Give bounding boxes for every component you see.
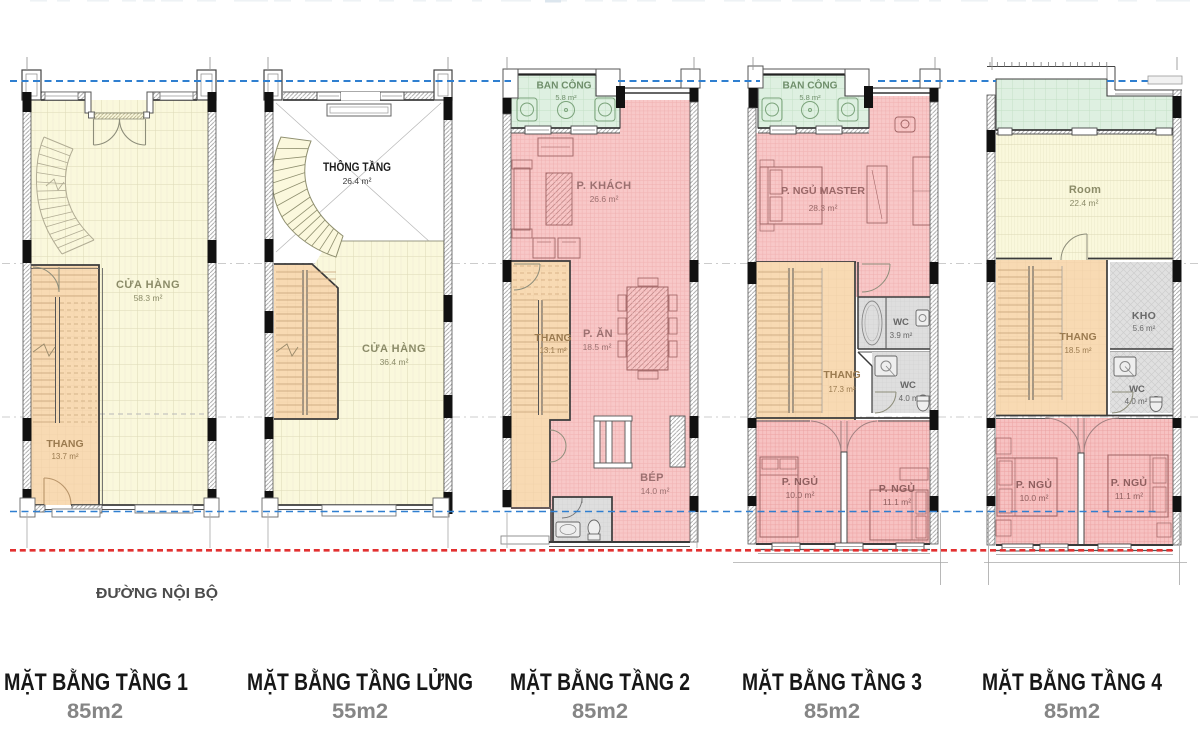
svg-text:WC: WC [900, 380, 916, 391]
svg-text:5.6 m²: 5.6 m² [1133, 324, 1156, 333]
svg-text:WC: WC [893, 317, 909, 328]
svg-text:18.5 m²: 18.5 m² [1064, 346, 1091, 355]
svg-text:CỬA HÀNG: CỬA HÀNG [362, 342, 426, 355]
svg-text:MẶT BẰNG TẦNG LỬNG: MẶT BẰNG TẦNG LỬNG [247, 667, 473, 696]
svg-text:P. NGỦ: P. NGỦ [1111, 476, 1148, 489]
svg-text:85m2: 85m2 [1044, 699, 1100, 723]
svg-text:5.8 m²: 5.8 m² [555, 93, 577, 102]
svg-text:P. NGỦ: P. NGỦ [1016, 478, 1053, 491]
svg-text:58.3 m²: 58.3 m² [134, 293, 163, 303]
svg-text:THANG: THANG [534, 332, 571, 344]
svg-text:P. KHÁCH: P. KHÁCH [577, 179, 632, 192]
svg-text:P. NGỦ: P. NGỦ [782, 475, 819, 488]
svg-text:85m2: 85m2 [804, 699, 860, 723]
svg-text:THANG: THANG [1059, 331, 1096, 343]
svg-text:17.3 m²: 17.3 m² [828, 385, 855, 394]
svg-text:CỬA HÀNG: CỬA HÀNG [116, 278, 180, 291]
svg-text:BÉP: BÉP [640, 471, 664, 484]
svg-text:26.4 m²: 26.4 m² [343, 176, 372, 186]
svg-text:MẶT BẰNG TẦNG 2: MẶT BẰNG TẦNG 2 [510, 668, 690, 696]
svg-text:11.1 m²: 11.1 m² [1115, 491, 1143, 501]
svg-text:WC: WC [1129, 384, 1145, 395]
svg-text:13.1 m²: 13.1 m² [539, 346, 566, 355]
svg-text:3.9 m²: 3.9 m² [890, 331, 913, 340]
svg-text:MẶT BẰNG TẦNG 4: MẶT BẰNG TẦNG 4 [982, 668, 1163, 696]
svg-text:55m2: 55m2 [332, 699, 388, 723]
svg-text:P. ĂN: P. ĂN [583, 327, 613, 340]
svg-text:BAN CÔNG: BAN CÔNG [537, 79, 592, 92]
svg-text:22.4 m²: 22.4 m² [1070, 198, 1099, 208]
svg-text:13.7 m²: 13.7 m² [51, 452, 78, 461]
svg-text:5.8 m²: 5.8 m² [799, 93, 821, 102]
svg-text:P. NGỦ: P. NGỦ [879, 482, 916, 495]
svg-text:KHO: KHO [1132, 310, 1156, 322]
svg-text:P. NGỦ MASTER: P. NGỦ MASTER [781, 184, 865, 197]
svg-text:THANG: THANG [823, 369, 860, 381]
svg-text:18.5 m²: 18.5 m² [583, 342, 612, 352]
svg-text:10.0 m²: 10.0 m² [786, 490, 815, 500]
svg-text:MẶT BẰNG TẦNG 1: MẶT BẰNG TẦNG 1 [4, 668, 188, 696]
svg-text:BAN CÔNG: BAN CÔNG [783, 79, 838, 92]
svg-text:4.0 m²: 4.0 m² [1125, 397, 1148, 406]
svg-text:85m2: 85m2 [572, 699, 628, 723]
svg-text:85m2: 85m2 [67, 699, 123, 723]
svg-text:THÔNG TẦNG: THÔNG TẦNG [323, 159, 391, 174]
svg-text:THANG: THANG [46, 438, 83, 450]
svg-text:26.6 m²: 26.6 m² [590, 194, 619, 204]
svg-text:ĐƯỜNG NỘI BỘ: ĐƯỜNG NỘI BỘ [96, 584, 218, 602]
svg-text:28.3 m²: 28.3 m² [809, 203, 838, 213]
svg-text:Room: Room [1069, 184, 1101, 196]
svg-text:36.4 m²: 36.4 m² [380, 357, 409, 367]
svg-text:10.0 m²: 10.0 m² [1020, 493, 1049, 503]
svg-text:MẶT BẰNG TẦNG 3: MẶT BẰNG TẦNG 3 [742, 668, 922, 696]
svg-text:14.0 m²: 14.0 m² [641, 486, 670, 496]
svg-text:11.1 m²: 11.1 m² [883, 497, 911, 507]
